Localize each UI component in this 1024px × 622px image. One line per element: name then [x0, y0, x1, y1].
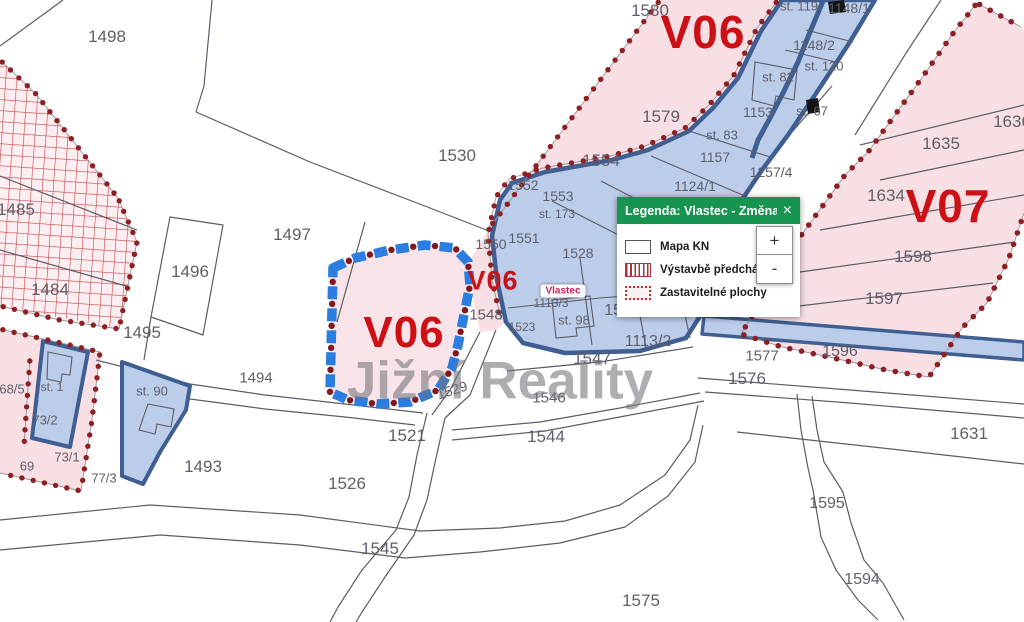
legend-header[interactable]: Legenda: Vlastec - Změna ... ×: [617, 197, 800, 224]
map-outline-swatch-icon: [625, 240, 651, 254]
close-icon[interactable]: ×: [777, 204, 792, 218]
zoom-out-button[interactable]: -: [756, 255, 793, 284]
legend-title: Legenda: Vlastec - Změna ...: [625, 204, 777, 218]
zoom-controls: + -: [756, 226, 793, 284]
cadastral-map: [0, 0, 1024, 622]
map-canvas[interactable]: [0, 0, 1024, 622]
legend-item-label: Mapa KN: [660, 241, 709, 253]
legend-item: Zastavitelné plochy: [625, 285, 792, 301]
zoom-in-button[interactable]: +: [756, 226, 793, 255]
red-hatch-swatch-icon: [625, 263, 651, 277]
red-dotted-swatch-icon: [625, 286, 651, 300]
legend-item-label: Zastavitelné plochy: [660, 287, 767, 299]
